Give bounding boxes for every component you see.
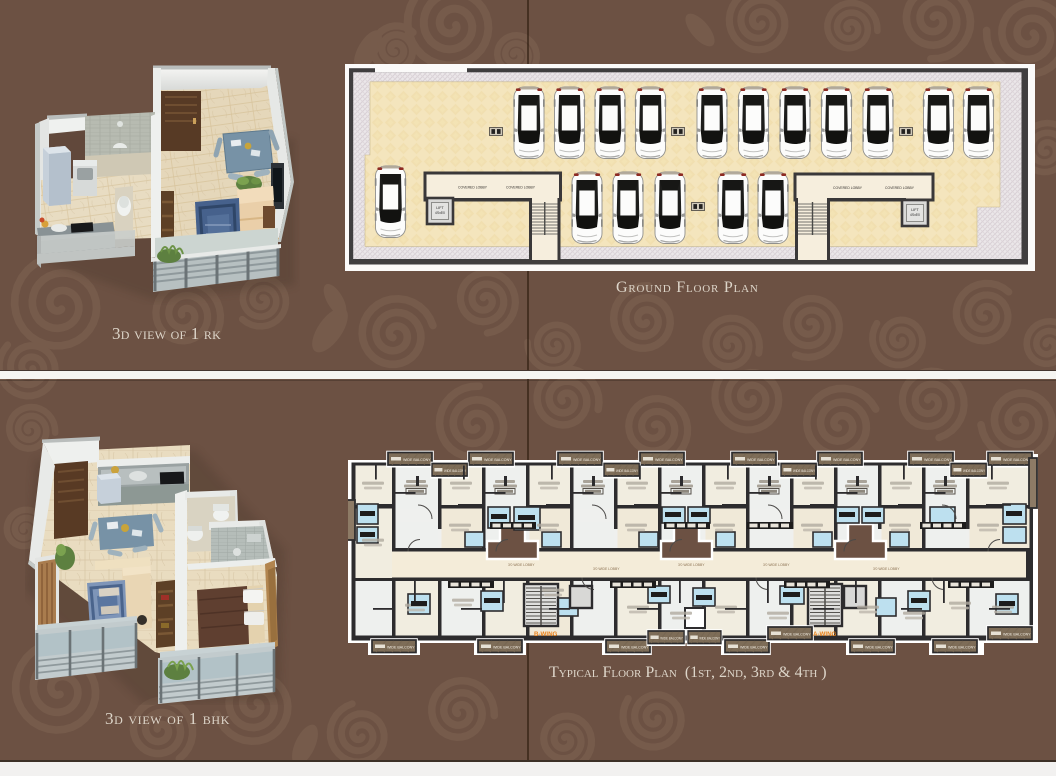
svg-text:4'0x5'0: 4'0x5'0: [910, 213, 920, 217]
svg-text:A-WING: A-WING: [813, 631, 837, 638]
svg-text:3'0 WIDE LOBBY: 3'0 WIDE LOBBY: [678, 563, 705, 567]
svg-text:LIFT: LIFT: [436, 206, 444, 210]
svg-text:COVERED LOBBY: COVERED LOBBY: [458, 186, 488, 190]
svg-text:4'0x5'0: 4'0x5'0: [435, 211, 445, 215]
svg-text:COVERED LOBBY: COVERED LOBBY: [506, 186, 536, 190]
svg-text:COVERED LOBBY: COVERED LOBBY: [885, 186, 915, 190]
svg-text:3'0 WIDE LOBBY: 3'0 WIDE LOBBY: [763, 563, 790, 567]
svg-text:LIFT: LIFT: [911, 208, 919, 212]
svg-text:COVERED LOBBY: COVERED LOBBY: [833, 186, 863, 190]
svg-text:3'0 WIDE LOBBY: 3'0 WIDE LOBBY: [873, 567, 900, 571]
svg-text:3'0 WIDE LOBBY: 3'0 WIDE LOBBY: [508, 563, 535, 567]
svg-text:B-WING: B-WING: [534, 631, 558, 638]
svg-text:3'0 WIDE LOBBY: 3'0 WIDE LOBBY: [593, 567, 620, 571]
